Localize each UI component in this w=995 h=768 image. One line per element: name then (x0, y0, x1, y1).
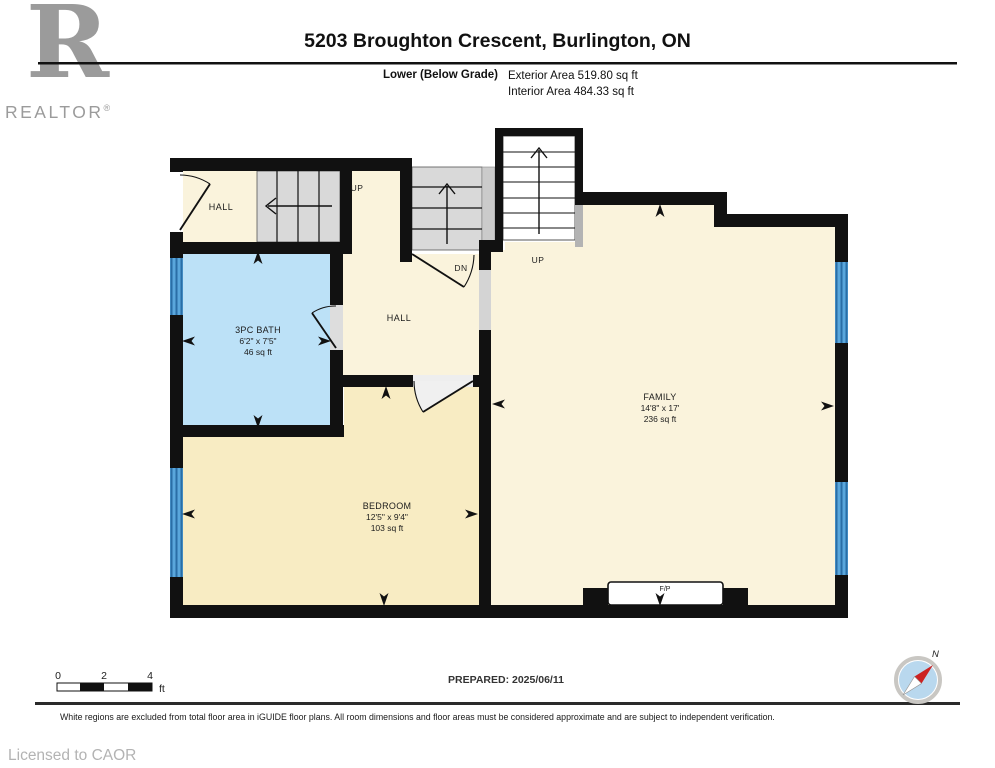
scale-tick-2: 2 (101, 670, 107, 682)
fireplace-flank-left (583, 588, 608, 618)
stair-railing (575, 205, 583, 247)
floorplan-page: R REALTOR® 5203 Broughton Crescent, Burl… (0, 0, 995, 768)
up-main-label: UP (532, 255, 545, 265)
scale-tick-4: 4 (147, 670, 153, 682)
footer-rule (35, 702, 960, 705)
bedroom-window (170, 468, 183, 577)
bedroom-area: 103 sq ft (371, 523, 404, 533)
family-name: FAMILY (643, 392, 676, 402)
family-window-lower (835, 482, 848, 575)
bath-area: 46 sq ft (244, 347, 273, 357)
up-left-label: UP (351, 183, 364, 193)
bedroom-dims: 12'5" x 9'4" (366, 512, 408, 522)
floorplan-drawing: F/P HALL UP HALL UP DN 3PC BATH 6'2" x 7… (0, 0, 995, 768)
stairs-top-white (503, 136, 575, 240)
scale-unit: ft (159, 683, 165, 695)
hall-family-opening (479, 270, 491, 330)
fireplace-flank-right (723, 588, 748, 618)
prepared-date: PREPARED: 2025/06/11 (448, 674, 564, 686)
family-area: 236 sq ft (644, 414, 677, 424)
compass-icon: N (896, 649, 940, 702)
hall-entry-opening (170, 172, 183, 232)
hall-upper-label: HALL (209, 202, 234, 212)
compass-north-label: N (932, 649, 939, 660)
bath-dims: 6'2" x 7'5" (239, 336, 276, 346)
hall-middle-label: HALL (387, 313, 412, 323)
stairs-middle-gray (412, 167, 495, 250)
fireplace-label: F/P (660, 586, 671, 593)
down-label: DN (454, 263, 467, 273)
scale-tick-0: 0 (55, 670, 61, 682)
license-text: Licensed to CAOR (8, 747, 136, 765)
fireplace: F/P (608, 582, 723, 605)
stairs-upper-left (257, 171, 340, 242)
bath-name: 3PC BATH (235, 325, 281, 335)
bedroom-name: BEDROOM (363, 501, 412, 511)
family-window-upper (835, 262, 848, 343)
family-dims: 14'8" x 17' (641, 403, 680, 413)
disclaimer-text: White regions are excluded from total fl… (60, 712, 960, 722)
header-rule (38, 62, 957, 65)
scale-bar: 0 2 4 ft (55, 670, 165, 695)
bath-window (170, 258, 183, 315)
